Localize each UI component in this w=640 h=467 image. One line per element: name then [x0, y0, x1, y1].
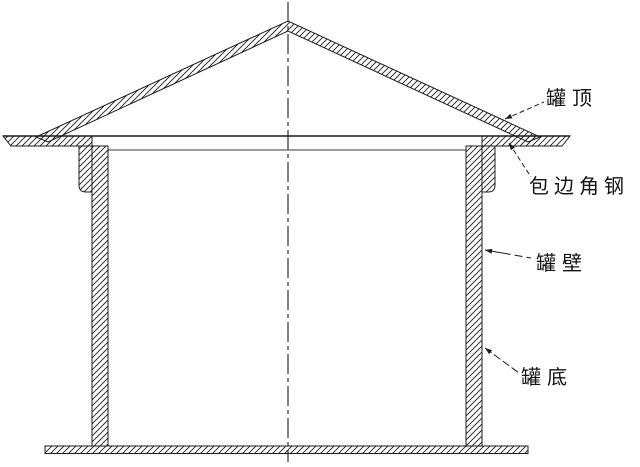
leader-wall-arrowhead [485, 249, 492, 254]
tank-bottom-label: 罐底 [521, 366, 573, 388]
leader-bottom-arrowhead [485, 348, 492, 354]
tank-section-drawing [0, 0, 640, 467]
curb-angle-left-vertical-leg [79, 146, 92, 192]
curb-angle-left-horizontal-leg [3, 136, 92, 146]
curb-angle-label: 包边角钢 [529, 175, 629, 197]
tank-wall-left [92, 146, 108, 446]
curb-angle-right-vertical-leg [482, 146, 495, 192]
tank-wall-right [466, 146, 482, 446]
figure-canvas: 罐顶 包边角钢 罐壁 罐底 [0, 0, 640, 467]
leader-roof-arrowhead [505, 114, 512, 119]
tank-wall-label: 罐壁 [536, 252, 588, 274]
tank-roof-label: 罐顶 [546, 87, 598, 109]
tank-bottom-plate [45, 446, 528, 454]
curb-angle-right-horizontal-leg [482, 136, 570, 146]
